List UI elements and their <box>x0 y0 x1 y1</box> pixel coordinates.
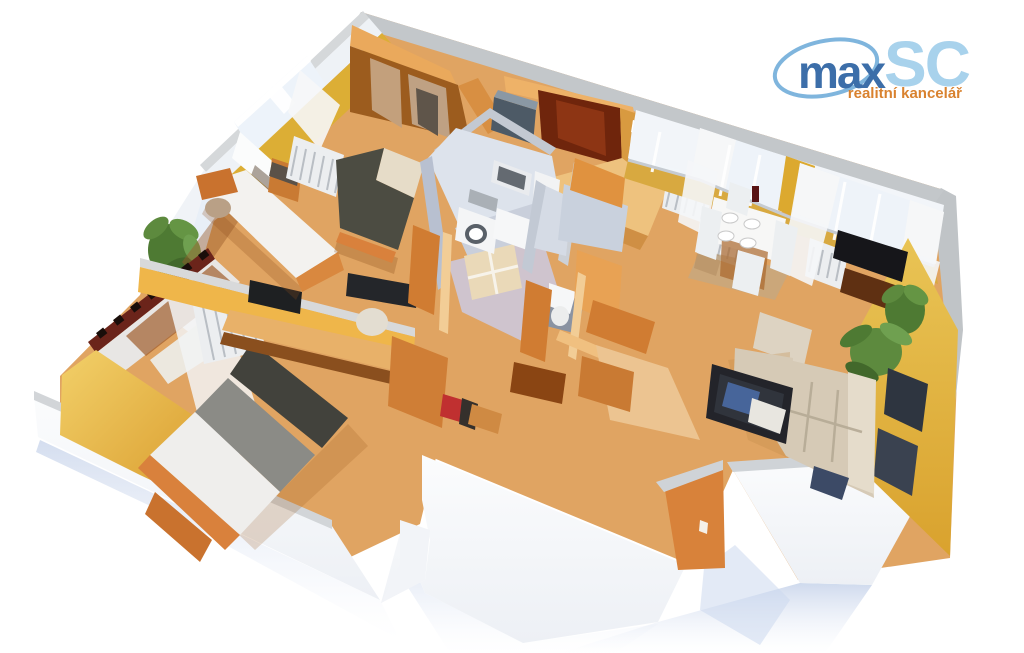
svg-text:realitní kancelář: realitní kancelář <box>848 85 962 102</box>
